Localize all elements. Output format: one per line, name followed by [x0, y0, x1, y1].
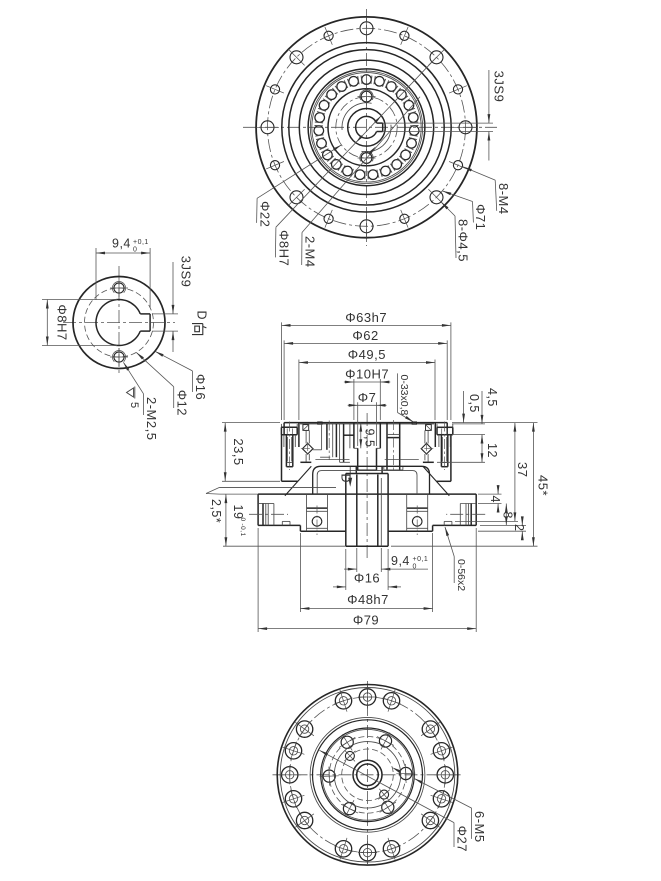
- svg-text:9,4: 9,4: [391, 554, 410, 568]
- svg-text:Φ7: Φ7: [358, 390, 377, 405]
- svg-text:8-Φ4,5: 8-Φ4,5: [456, 219, 471, 262]
- svg-text:Φ10H7: Φ10H7: [345, 367, 389, 382]
- svg-text:6-M5: 6-M5: [472, 811, 487, 843]
- svg-text:0,5: 0,5: [467, 394, 481, 413]
- svg-text:12: 12: [485, 443, 499, 458]
- svg-text:2-M4: 2-M4: [302, 236, 317, 268]
- svg-text:Φ49,5: Φ49,5: [348, 347, 386, 362]
- svg-text:5: 5: [128, 402, 140, 409]
- svg-text:2,5*: 2,5*: [209, 499, 223, 523]
- svg-text:2: 2: [512, 524, 526, 531]
- svg-text:Φ27: Φ27: [455, 826, 470, 852]
- svg-text:37: 37: [515, 462, 530, 477]
- svg-text:9,5: 9,5: [363, 429, 377, 448]
- svg-text:9,4: 9,4: [112, 237, 131, 251]
- svg-text:0: 0: [133, 247, 137, 254]
- svg-text:D: D: [339, 474, 353, 484]
- svg-text:-0,1: -0,1: [239, 524, 246, 537]
- svg-text:Φ8H7: Φ8H7: [276, 230, 291, 266]
- svg-text:+0,1: +0,1: [133, 239, 149, 246]
- svg-text:Φ71: Φ71: [473, 204, 488, 230]
- svg-text:Φ16: Φ16: [354, 571, 380, 586]
- svg-text:Φ63h7: Φ63h7: [345, 310, 387, 325]
- svg-text:8: 8: [500, 512, 514, 519]
- svg-text:4,5: 4,5: [485, 388, 499, 407]
- svg-text:3JS9: 3JS9: [492, 71, 507, 103]
- svg-text:0-33x0,8: 0-33x0,8: [398, 375, 410, 416]
- svg-text:0: 0: [239, 517, 246, 521]
- svg-text:0-56x2: 0-56x2: [455, 559, 467, 591]
- svg-text:2-M2,5: 2-M2,5: [144, 397, 159, 440]
- svg-text:Φ22: Φ22: [258, 201, 273, 227]
- svg-text:+0,1: +0,1: [413, 556, 429, 563]
- svg-text:Φ16: Φ16: [193, 374, 208, 400]
- svg-text:Φ79: Φ79: [353, 612, 379, 627]
- svg-text:0: 0: [413, 564, 417, 571]
- svg-text:23,5: 23,5: [231, 438, 246, 465]
- svg-text:Φ8H7: Φ8H7: [55, 304, 70, 340]
- svg-text:Φ48h7: Φ48h7: [347, 592, 389, 607]
- svg-text:D: D: [195, 310, 209, 321]
- svg-text:Φ12: Φ12: [174, 390, 189, 416]
- svg-text:4: 4: [488, 496, 502, 503]
- svg-text:8-M4: 8-M4: [496, 183, 511, 215]
- svg-text:Φ62: Φ62: [352, 328, 378, 343]
- svg-text:3JS9: 3JS9: [179, 256, 194, 288]
- svg-text:45*: 45*: [536, 475, 551, 496]
